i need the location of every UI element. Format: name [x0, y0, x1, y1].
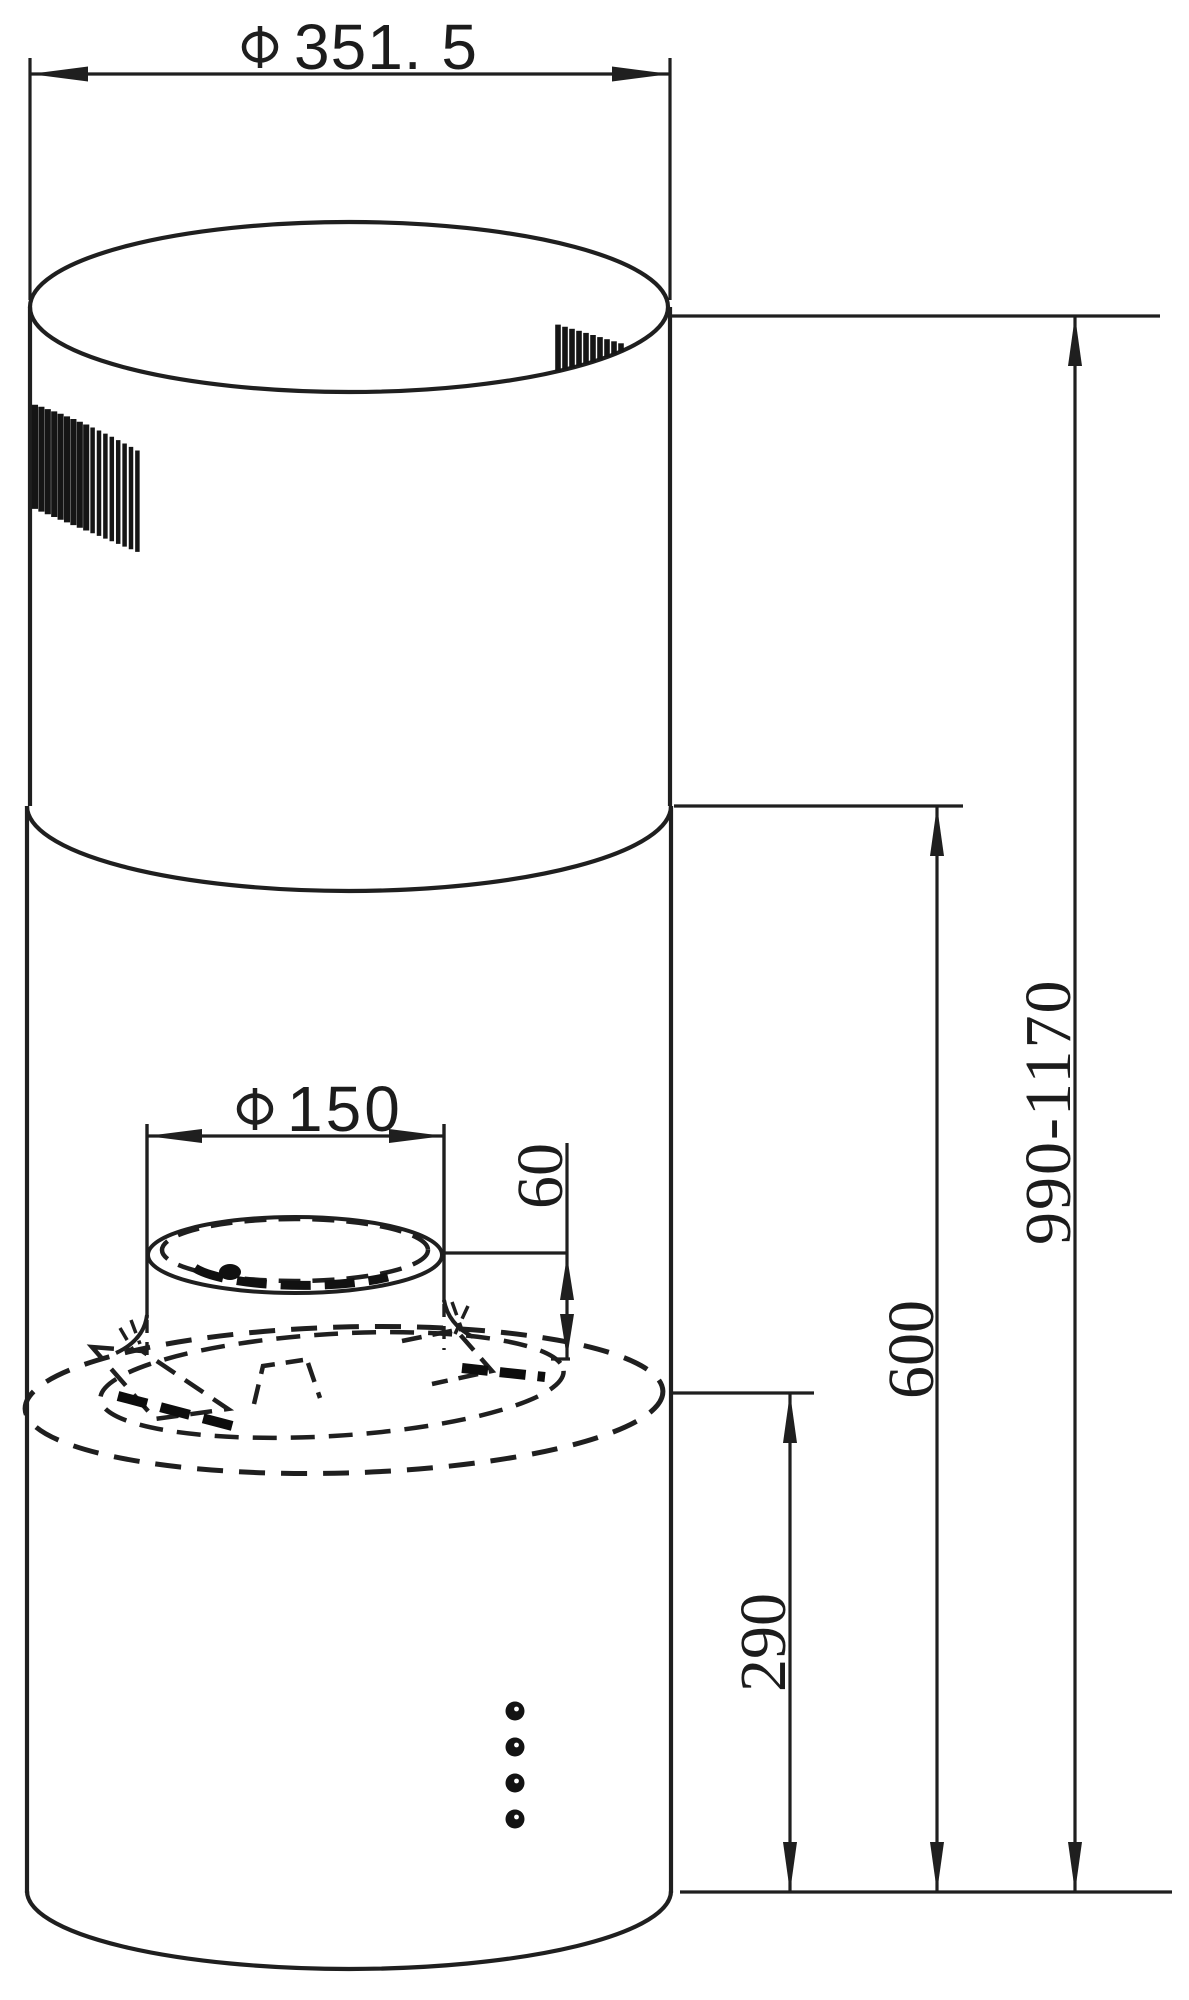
svg-text:600: 600: [875, 1300, 948, 1399]
svg-text:60: 60: [504, 1143, 577, 1209]
svg-text:290: 290: [727, 1593, 800, 1692]
svg-text:990-1170: 990-1170: [1012, 978, 1085, 1245]
svg-text:150: 150: [287, 1073, 403, 1145]
svg-text:351. 5: 351. 5: [294, 11, 478, 83]
